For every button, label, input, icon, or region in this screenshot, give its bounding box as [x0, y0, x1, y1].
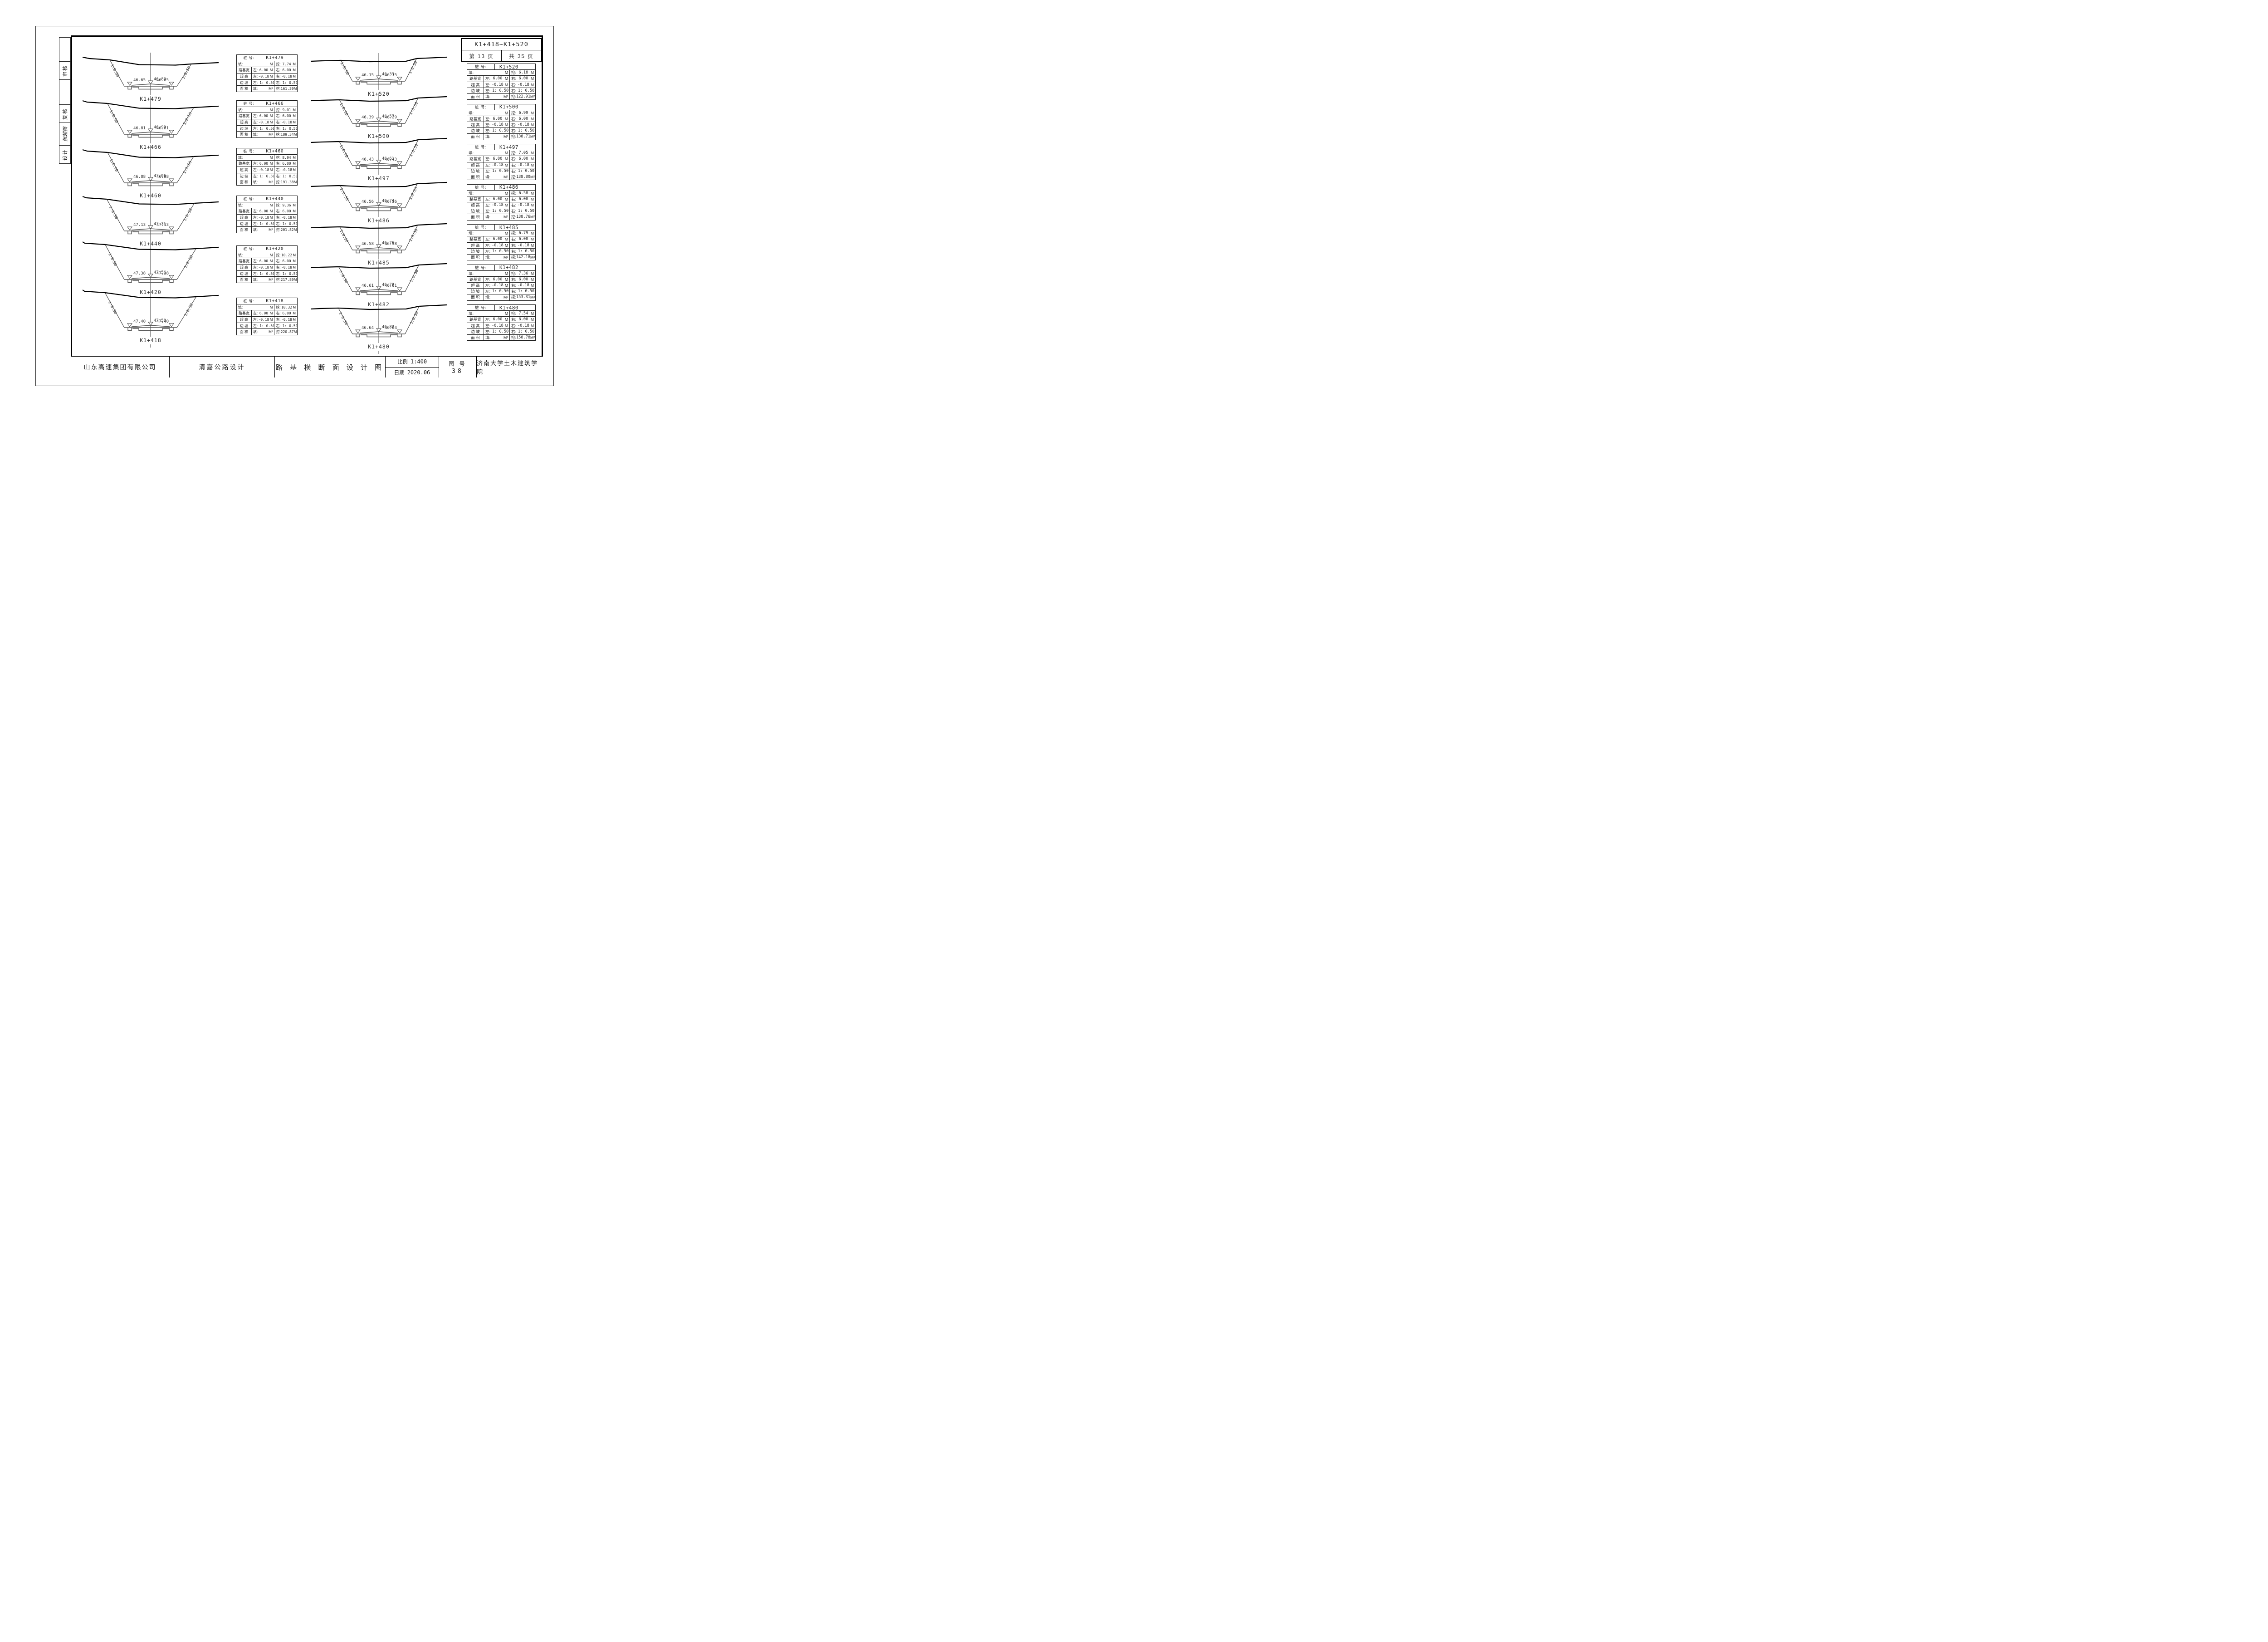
right-label: 右:: [276, 323, 280, 328]
area-label: 面 积: [467, 255, 484, 260]
unit: M: [505, 283, 508, 288]
ditch-left: [128, 134, 132, 137]
right-label: 右:: [276, 317, 280, 322]
cut-value: 10.22: [281, 253, 292, 257]
roadbed-left-cell: 左: 6.00 M: [484, 156, 509, 162]
page-number: 第 13 页: [462, 50, 502, 62]
superelevation-left-value: -0.18: [258, 120, 269, 124]
left-label: 左:: [253, 323, 258, 328]
elevation-right: 46.43: [385, 157, 397, 162]
elevation-right: 46.56: [385, 200, 397, 204]
sidebar-cell-text: 审核: [61, 65, 68, 77]
superelevation-right-cell: 右: -0.18 M: [509, 162, 535, 168]
slope-ratio-left: 1:0.50: [107, 253, 117, 267]
left-label: 左:: [485, 243, 490, 248]
ditch-right: [170, 183, 173, 186]
station-value: K1+440: [261, 196, 297, 202]
slope-left-value: 1: 0.50: [492, 169, 508, 173]
right-label: 右:: [511, 128, 516, 133]
slope-right-cell: 右: 1: 0.50: [274, 323, 297, 329]
cut-value: 7.54: [519, 311, 528, 316]
superelevation-label: 超 高: [467, 202, 484, 208]
level-icon: [376, 286, 381, 289]
superelevation-label: 超 高: [467, 283, 484, 288]
table-row-station: 桩 号: K1+440: [237, 196, 297, 202]
superelevation-label: 超 高: [237, 265, 251, 270]
area-cut-value: 217.89: [281, 278, 294, 282]
area-cut-cell: 挖: 138.71 M²: [509, 134, 535, 139]
unit: M: [505, 163, 508, 167]
cut-cell: 挖: 9.36 M: [274, 202, 297, 208]
section-data-table: 桩 号: K1+486 填: M 挖: 6.58 M 路基宽 左: 6.00 M…: [467, 184, 536, 221]
superelevation-right-cell: 右: -0.18 M: [274, 167, 297, 173]
section-data-table: 桩 号: K1+466 填: M 挖: 9.01 M 路基宽 左: 6.00 M…: [236, 100, 298, 138]
area-cut-cell: 挖: 201.82 M²: [274, 227, 297, 233]
roadbed-left-value: 6.00: [259, 209, 268, 213]
table-row-slope: 边 坡 左: 1: 0.50 右: 1: 0.50: [467, 208, 535, 214]
unit: M: [293, 265, 296, 270]
area-fill-cell: 填: M²: [251, 329, 274, 335]
slope-label: 边 坡: [237, 80, 251, 86]
table-row-area: 面 积 填: M² 挖: 161.39 M²: [237, 85, 297, 92]
area-fill-cell: 填: M²: [484, 255, 509, 260]
unit: M: [505, 76, 508, 81]
superelevation-left-value: -0.18: [492, 243, 503, 248]
superelevation-label: 超 高: [467, 122, 484, 127]
fill-cell: 填: M: [237, 155, 274, 161]
station-value: K1+486: [494, 185, 535, 190]
superelevation-left-value: -0.18: [258, 265, 269, 270]
cut-cell: 挖: 9.01 M: [274, 107, 297, 113]
cut-cell: 挖: 7.74 M: [274, 61, 297, 67]
level-icon: [397, 246, 402, 249]
roadbed-label: 路基宽: [237, 258, 251, 264]
area-cut-cell: 挖: 138.76 M²: [509, 214, 535, 220]
unit-m2: M²: [294, 278, 297, 282]
superelevation-left-cell: 左: -0.18 M: [484, 122, 509, 127]
slope-left-value: 1: 0.50: [259, 81, 274, 85]
cut-label: 挖:: [511, 134, 516, 139]
area-cut-value: 122.91: [516, 94, 530, 99]
superelevation-right-value: -0.18: [518, 163, 529, 167]
slope-label: 边 坡: [237, 323, 251, 329]
superelevation-left-cell: 左: -0.18 M: [484, 82, 509, 88]
level-icon: [169, 323, 174, 327]
cut-cell: 挖: 6.99 M: [509, 110, 535, 116]
superelevation-left-value: -0.18: [492, 323, 503, 328]
table-row-station: 桩 号: K1+485: [467, 225, 535, 230]
unit: M: [293, 216, 296, 220]
section-data-table: 桩 号: K1+418 填: M 挖: 10.32 M 路基宽 左: 6.00 …: [236, 298, 298, 335]
cross-section-K1+480: 46.64 46.82 46.64 1:0.50 1:0.50 K1+480: [311, 298, 447, 355]
table-row-roadbed: 路基宽 左: 6.00 M 右: 6.00 M: [237, 67, 297, 73]
level-icon: [148, 81, 153, 84]
station-value: K1+420: [261, 246, 297, 252]
superelevation-left-cell: 左: -0.18 M: [251, 119, 274, 125]
table-row-fill-cut: 填: M 挖: 6.58 M: [467, 190, 535, 196]
station-label: 桩 号:: [467, 265, 494, 270]
elevation-right: 47.13: [156, 223, 169, 227]
cut-value: 6.18: [519, 70, 528, 75]
cut-label: 挖:: [276, 132, 280, 137]
fill-cell: 填: M: [237, 202, 274, 208]
table-row-roadbed: 路基宽 左: 6.00 M 右: 6.00 M: [237, 160, 297, 167]
superelevation-left-value: -0.18: [492, 83, 503, 87]
level-icon: [356, 204, 360, 207]
area-fill-cell: 填: M²: [484, 214, 509, 220]
level-icon: [127, 227, 132, 230]
superelevation-left-cell: 左: -0.18 M: [484, 162, 509, 168]
unit-m2: M²: [503, 295, 508, 299]
superelevation-left-value: -0.18: [492, 123, 503, 127]
slope-ratio-left: 1:0.50: [338, 144, 349, 159]
right-label: 右:: [511, 289, 516, 294]
unit: M: [531, 203, 534, 207]
left-label: 左:: [253, 209, 258, 214]
cut-label: 挖:: [511, 311, 516, 316]
slope-right-value: 1: 0.50: [283, 222, 297, 226]
sidebar-cell-text: 复核: [61, 108, 68, 120]
table-row-fill-cut: 填: M 挖: 9.01 M: [237, 107, 297, 113]
right-label: 右:: [276, 215, 280, 220]
left-label: 左:: [485, 323, 490, 328]
elevation-left: 46.88: [133, 175, 146, 179]
roadbed-right-value: 6.00: [519, 317, 528, 322]
ditch-right: [398, 123, 401, 127]
table-row-slope: 边 坡 左: 1: 0.50 右: 1: 0.50: [237, 221, 297, 227]
section-data-table: 桩 号: K1+500 填: M 挖: 6.99 M 路基宽 左: 6.00 M…: [467, 104, 536, 140]
right-label: 右:: [511, 243, 516, 248]
ditch-right: [170, 86, 173, 89]
figure-number-value: 38: [452, 368, 464, 375]
ditch-left: [128, 183, 132, 186]
level-icon: [127, 179, 132, 182]
area-cut-value: 161.39: [281, 87, 294, 91]
station-value: K1+485: [494, 225, 535, 230]
page-total: 共 35 页: [502, 50, 541, 62]
ditch-left: [356, 166, 360, 169]
left-label: 左:: [485, 162, 490, 168]
level-icon: [356, 162, 360, 165]
unit: M: [505, 237, 508, 241]
station-value: K1+480: [494, 305, 535, 310]
roadbed-label: 路基宽: [467, 196, 484, 202]
area-label: 面 积: [237, 329, 251, 335]
cut-unit: M: [531, 111, 534, 115]
fill-label: 填:: [469, 311, 474, 316]
area-label: 面 积: [467, 134, 484, 139]
elevation-left: 47.40: [133, 319, 146, 324]
superelevation-left-cell: 左: -0.18 M: [251, 215, 274, 221]
roadbed-right-cell: 右: 6.00 M: [274, 208, 297, 214]
sidebar-cell-empty-0: [59, 37, 71, 62]
table-row-fill-cut: 填: M 挖: 9.36 M: [237, 202, 297, 208]
superelevation-right-value: -0.18: [518, 283, 529, 288]
slope-label: 边 坡: [467, 329, 484, 334]
right-label: 右:: [511, 329, 516, 334]
slope-ratio-right: 1:0.50: [409, 311, 420, 325]
unit-m2: M²: [503, 94, 508, 99]
slope-label: 边 坡: [237, 173, 251, 179]
superelevation-right-value: -0.18: [518, 203, 529, 207]
left-label: 左:: [253, 271, 258, 276]
elevation-left: 46.56: [362, 200, 374, 204]
fill-unit: M: [270, 62, 273, 66]
roadbed-left-cell: 左: 6.00 M: [484, 196, 509, 202]
left-label: 左:: [485, 76, 490, 81]
elevation-right: 46.15: [385, 73, 397, 78]
station-label: 桩 号:: [467, 225, 494, 230]
unit-m2: M²: [530, 295, 535, 299]
unit: M: [270, 259, 273, 263]
figure-number-label: 图 号: [449, 360, 466, 368]
slope-ratio-right: 1:0.50: [182, 112, 193, 126]
table-row-fill-cut: 填: M 挖: 10.32 M: [237, 304, 297, 310]
slope-right-cell: 右: 1: 0.50: [274, 221, 297, 227]
right-label: 右:: [276, 126, 280, 131]
area-cut-cell: 挖: 189.34 M²: [274, 132, 297, 137]
table-row-station: 桩 号: K1+418: [237, 298, 297, 304]
ditch-right: [398, 292, 401, 295]
station-value: K1+500: [494, 104, 535, 110]
sidebar-cell-text: 张超强: [61, 127, 68, 142]
table-row-station: 桩 号: K1+460: [237, 148, 297, 154]
slope-label: 边 坡: [467, 249, 484, 254]
level-icon: [356, 330, 360, 333]
fill-label: 填:: [253, 227, 258, 232]
fill-unit: M: [270, 156, 273, 160]
table-row-slope: 边 坡 左: 1: 0.50 右: 1: 0.50: [237, 125, 297, 132]
slope-left-cell: 左: 1: 0.50: [484, 208, 509, 214]
slope-left-value: 1: 0.50: [492, 88, 508, 93]
area-label: 面 积: [467, 294, 484, 300]
cut-unit: M: [531, 271, 534, 276]
fill-label: 填:: [253, 180, 258, 185]
level-icon: [148, 177, 153, 181]
right-label: 右:: [511, 168, 516, 174]
fill-cell: 填: M: [237, 107, 274, 113]
section-data-table: 桩 号: K1+497 填: M 挖: 7.05 M 路基宽 左: 6.00 M…: [467, 144, 536, 180]
unit: M: [505, 243, 508, 248]
roadbed-right-value: 6.00: [282, 209, 291, 213]
section-data-table: 桩 号: K1+520 填: M 挖: 6.18 M 路基宽 左: 6.00 M…: [467, 64, 536, 100]
roadbed-left-value: 6.00: [493, 117, 503, 121]
slope-ratio-left: 1:0.50: [108, 158, 119, 173]
slope-left-cell: 左: 1: 0.50: [251, 271, 274, 277]
cut-label: 挖:: [511, 214, 516, 220]
ditch-left: [356, 208, 360, 211]
unit: M: [531, 197, 534, 201]
unit: M: [293, 311, 296, 315]
slope-right-value: 1: 0.50: [518, 209, 534, 213]
ditch-right: [398, 250, 401, 253]
slope-left-cell: 左: 1: 0.50: [484, 329, 509, 334]
area-fill-cell: 填: M²: [484, 134, 509, 139]
superelevation-right-value: -0.18: [518, 243, 529, 248]
superelevation-right-value: -0.18: [281, 120, 292, 124]
superelevation-left-value: -0.18: [492, 163, 503, 167]
station-value: K1+460: [261, 148, 297, 154]
level-icon: [376, 160, 381, 163]
elevation-right: 46.81: [156, 126, 169, 131]
roadbed-left-cell: 左: 6.00 M: [484, 236, 509, 242]
left-label: 左:: [253, 174, 258, 179]
right-label: 右:: [511, 249, 516, 254]
roadbed-right-cell: 右: 6.00 M: [509, 236, 535, 242]
right-label: 右:: [276, 74, 280, 79]
unit: M: [293, 168, 296, 172]
cut-label: 挖:: [276, 305, 280, 310]
slope-right-cell: 右: 1: 0.50: [509, 88, 535, 93]
table-row-slope: 边 坡 左: 1: 0.50 右: 1: 0.50: [467, 127, 535, 133]
unit: M: [270, 168, 273, 172]
left-label: 左:: [485, 236, 490, 242]
station-label: 桩 号:: [467, 64, 494, 69]
table-row-superelevation: 超 高 左: -0.18 M 右: -0.18 M: [237, 316, 297, 323]
right-label: 右:: [511, 82, 516, 88]
level-icon: [127, 323, 132, 327]
cut-unit: M: [293, 305, 296, 309]
station-label: 桩 号:: [467, 144, 494, 150]
superelevation-right-cell: 右: -0.18 M: [509, 243, 535, 248]
superelevation-left-cell: 左: -0.18 M: [251, 74, 274, 79]
table-row-station: 桩 号: K1+420: [237, 246, 297, 252]
area-cut-cell: 挖: 138.80 M²: [509, 174, 535, 180]
level-icon: [169, 82, 174, 85]
cut-unit: M: [531, 70, 534, 75]
sidebar-cell-empty-2: [59, 80, 71, 105]
cut-value: 7.74: [282, 62, 291, 66]
superelevation-left-value: -0.18: [492, 203, 503, 207]
unit: M: [531, 243, 534, 248]
area-cut-cell: 挖: 191.38 M²: [274, 179, 297, 185]
unit-m2: M²: [530, 175, 535, 179]
unit: M: [270, 311, 273, 315]
ditch-right: [170, 279, 173, 283]
station-label: 桩 号:: [467, 104, 494, 110]
slope-right-cell: 右: 1: 0.50: [509, 329, 535, 334]
right-label: 右:: [276, 265, 280, 270]
fill-label: 填:: [253, 132, 258, 137]
ditch-right: [398, 81, 401, 84]
right-label: 右:: [276, 113, 280, 118]
cut-value: 6.58: [519, 191, 528, 196]
unit-m2: M²: [530, 255, 535, 260]
level-icon: [169, 130, 174, 133]
cut-value: 7.05: [519, 151, 528, 155]
unit: M: [531, 277, 534, 282]
slope-left-cell: 左: 1: 0.50: [251, 80, 274, 86]
slope-left-value: 1: 0.50: [259, 222, 274, 226]
right-label: 右:: [276, 221, 280, 226]
table-row-area: 面 积 填: M² 挖: 138.71 M²: [467, 133, 535, 139]
station-label: K1+480: [368, 343, 390, 350]
slope-left-value: 1: 0.50: [492, 128, 508, 133]
right-label: 右:: [511, 277, 516, 282]
slope-right-cell: 右: 1: 0.50: [274, 126, 297, 132]
superelevation-right-value: -0.18: [281, 265, 292, 270]
cut-value: 7.36: [519, 271, 528, 276]
ditch-left: [356, 292, 360, 295]
right-label: 右:: [511, 122, 516, 127]
right-label: 右:: [511, 156, 516, 162]
level-icon: [397, 77, 402, 80]
fill-label: 填:: [238, 203, 243, 208]
sidebar-cell-4: 张超强: [59, 123, 71, 146]
unit-m2: M²: [269, 278, 273, 282]
elevation-right: 46.88: [156, 175, 169, 179]
section-data-table: 桩 号: K1+440 填: M 挖: 9.36 M 路基宽 左: 6.00 M…: [236, 196, 298, 233]
slope-left-cell: 左: 1: 0.50: [251, 221, 274, 227]
elevation-left: 47.13: [133, 223, 146, 227]
cut-label: 挖:: [511, 294, 516, 300]
roadbed-right-value: 6.00: [519, 197, 528, 201]
slope-right-value: 1: 0.50: [283, 324, 297, 328]
superelevation-right-value: -0.18: [281, 318, 292, 322]
date-label: 日期: [394, 369, 405, 376]
superelevation-left-cell: 左: -0.18 M: [251, 265, 274, 270]
fill-unit: M: [270, 253, 273, 257]
slope-label: 边 坡: [467, 289, 484, 294]
roadbed-label: 路基宽: [467, 76, 484, 81]
slope-left-cell: 左: 1: 0.50: [251, 173, 274, 179]
institute-name: 济南大学土木建筑学院: [476, 357, 543, 377]
slope-right-value: 1: 0.50: [518, 169, 534, 173]
left-label: 左:: [485, 277, 490, 282]
fill-label: 填:: [238, 108, 243, 113]
ditch-left: [128, 231, 132, 234]
unit-m2: M²: [269, 228, 273, 232]
left-label: 左:: [253, 120, 258, 125]
fill-label: 填:: [485, 174, 490, 180]
area-fill-cell: 填: M²: [251, 227, 274, 233]
table-row-area: 面 积 填: M² 挖: 142.18 M²: [467, 254, 535, 260]
slope-ratio-left: 1:0.50: [109, 64, 120, 78]
sidebar-cell-3: 复核: [59, 105, 71, 123]
area-label: 面 积: [467, 174, 484, 180]
level-icon: [148, 129, 153, 132]
left-label: 左:: [253, 126, 258, 131]
table-row-superelevation: 超 高 左: -0.18 M 右: -0.18 M: [237, 119, 297, 125]
cut-unit: M: [293, 108, 296, 112]
cut-label: 挖:: [276, 203, 280, 208]
superelevation-label: 超 高: [237, 119, 251, 125]
roadbed-right-value: 6.00: [519, 157, 528, 161]
slope-ratio-right: 1:0.50: [409, 101, 419, 116]
area-cut-value: 158.78: [516, 335, 530, 340]
slope-ratio-right: 1:0.50: [409, 269, 420, 284]
unit: M: [293, 209, 296, 213]
roadbed-right-cell: 右: 6.00 M: [509, 277, 535, 282]
station-label: K1+418: [140, 337, 161, 343]
table-row-fill-cut: 填: M 挖: 7.05 M: [467, 150, 535, 156]
roadbed-left-cell: 左: 6.00 M: [251, 113, 274, 119]
roadbed-left-cell: 左: 6.00 M: [484, 277, 509, 282]
table-row-superelevation: 超 高 左: -0.18 M 右: -0.18 M: [467, 323, 535, 328]
unit-m2: M²: [530, 134, 535, 139]
left-label: 左:: [485, 196, 490, 202]
station-label: 桩 号:: [237, 55, 261, 61]
left-label: 左:: [485, 88, 490, 93]
slope-label: 边 坡: [467, 168, 484, 174]
fill-cell: 填: M: [467, 150, 509, 156]
slope-label: 边 坡: [467, 208, 484, 214]
section-data-table: 桩 号: K1+485 填: M 挖: 6.79 M 路基宽 左: 6.00 M…: [467, 224, 536, 260]
table-row-area: 面 积 填: M² 挖: 201.82 M²: [237, 226, 297, 233]
slope-left-cell: 左: 1: 0.50: [484, 88, 509, 93]
unit-m2: M²: [294, 330, 297, 334]
left-label: 左:: [253, 311, 258, 316]
